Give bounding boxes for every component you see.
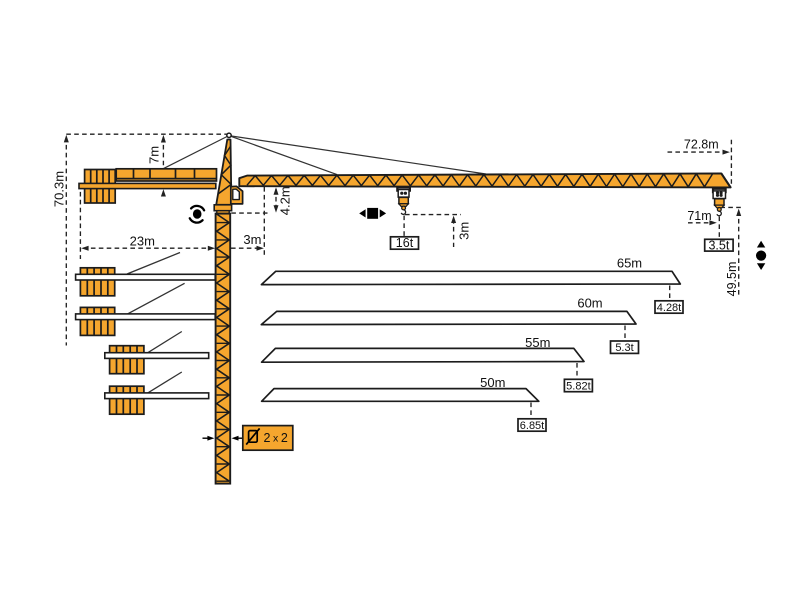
svg-text:23m: 23m <box>130 233 155 248</box>
svg-text:70.3m: 70.3m <box>52 171 67 207</box>
svg-text:4.2m: 4.2m <box>277 186 292 215</box>
svg-text:50m: 50m <box>480 375 505 390</box>
svg-text:49.5m: 49.5m <box>725 262 739 297</box>
svg-text:4.28t: 4.28t <box>657 302 681 314</box>
svg-text:6.85t: 6.85t <box>520 420 544 432</box>
svg-text:7m: 7m <box>146 146 161 164</box>
svg-text:2x2: 2x2 <box>264 431 288 445</box>
svg-text:5.82t: 5.82t <box>566 380 590 392</box>
svg-text:71m: 71m <box>687 209 711 223</box>
svg-text:3m: 3m <box>243 232 261 247</box>
svg-text:5.3t: 5.3t <box>615 342 633 354</box>
svg-text:16t: 16t <box>396 236 414 250</box>
svg-text:3m: 3m <box>457 222 472 240</box>
svg-text:55m: 55m <box>525 335 550 350</box>
svg-text:65m: 65m <box>617 255 642 270</box>
svg-text:60m: 60m <box>577 296 602 311</box>
svg-text:72.8m: 72.8m <box>684 138 719 152</box>
svg-text:3.5t: 3.5t <box>708 238 729 252</box>
